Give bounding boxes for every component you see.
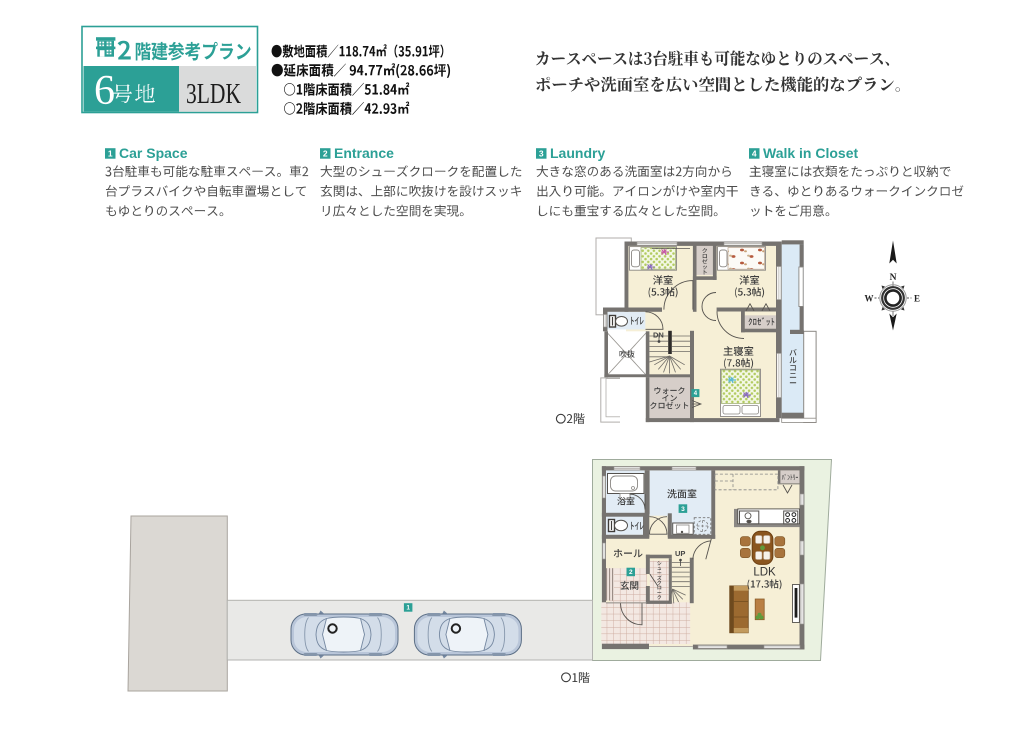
- svg-text:LDK: LDK: [753, 567, 776, 579]
- svg-text:3: 3: [681, 506, 685, 513]
- svg-text:3LDK: 3LDK: [186, 78, 241, 110]
- svg-text:6: 6: [94, 68, 115, 114]
- svg-text:DN: DN: [653, 331, 664, 340]
- svg-text:UP: UP: [675, 549, 685, 558]
- svg-text:Laundry: Laundry: [550, 145, 605, 161]
- svg-text:1: 1: [108, 149, 113, 159]
- svg-text:3: 3: [539, 149, 544, 159]
- svg-text:E: E: [914, 294, 920, 304]
- svg-text:1: 1: [406, 605, 410, 612]
- svg-text:Car Space: Car Space: [119, 145, 188, 161]
- svg-text:Walk in Closet: Walk in Closet: [763, 145, 859, 161]
- svg-text:4: 4: [752, 149, 757, 159]
- svg-text:Entrance: Entrance: [334, 145, 394, 161]
- svg-text:2: 2: [323, 149, 328, 159]
- svg-text:W: W: [865, 294, 874, 304]
- svg-text:2: 2: [629, 569, 633, 576]
